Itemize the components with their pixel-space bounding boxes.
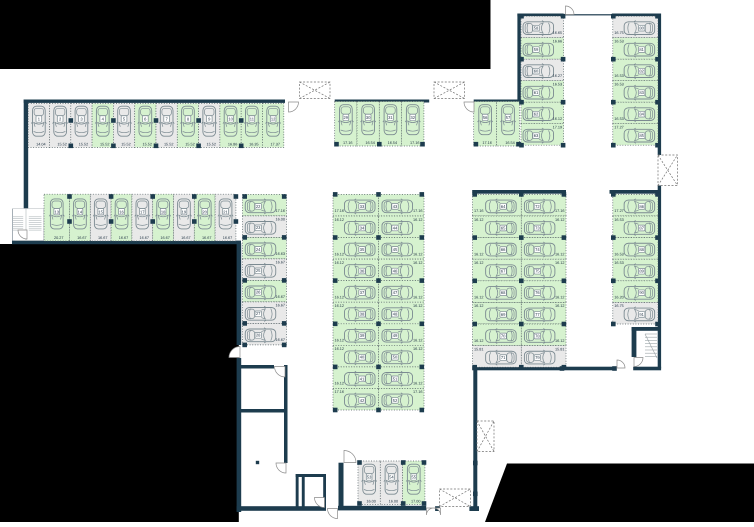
svg-text:16.53: 16.53 [614,74,624,78]
svg-text:88: 88 [639,247,644,252]
svg-text:16.12: 16.12 [474,304,484,308]
svg-text:17.16: 17.16 [343,141,353,145]
svg-text:16.12: 16.12 [335,382,345,386]
svg-text:13: 13 [55,209,60,214]
svg-text:32: 32 [411,115,416,120]
svg-text:16.12: 16.12 [555,261,565,265]
svg-text:16.12: 16.12 [335,304,345,308]
svg-text:75: 75 [535,269,540,274]
svg-text:62: 62 [534,112,539,117]
svg-text:16.67: 16.67 [140,236,150,240]
svg-text:17.16: 17.16 [413,390,423,394]
svg-text:16.12: 16.12 [335,218,345,222]
svg-text:16.53: 16.53 [614,252,624,256]
svg-text:16.12: 16.12 [474,296,484,300]
svg-text:33: 33 [360,204,365,209]
svg-text:16.12: 16.12 [474,261,484,265]
svg-text:15.52: 15.52 [100,142,110,146]
svg-text:16.12: 16.12 [413,252,423,256]
svg-text:70: 70 [501,333,506,338]
svg-text:39: 39 [360,333,365,338]
svg-text:16.53: 16.53 [553,83,563,87]
svg-text:68: 68 [501,290,506,295]
svg-text:64: 64 [501,204,506,209]
svg-text:16.75: 16.75 [614,304,624,308]
svg-text:16.53: 16.53 [614,40,624,44]
svg-text:15.81: 15.81 [474,347,484,351]
svg-text:20.27: 20.27 [54,236,64,240]
svg-text:16.67: 16.67 [275,338,285,342]
svg-text:48: 48 [393,312,398,317]
svg-text:63: 63 [534,133,539,138]
svg-text:15.52: 15.52 [185,142,195,146]
svg-text:61: 61 [534,90,539,95]
svg-text:29: 29 [344,115,349,120]
svg-text:17.37: 17.37 [270,142,280,146]
svg-text:28: 28 [256,333,261,338]
svg-text:47: 47 [393,290,398,295]
svg-text:42: 42 [360,398,365,403]
svg-text:14.04: 14.04 [36,142,46,146]
svg-text:23: 23 [256,225,261,230]
svg-text:15: 15 [98,209,103,214]
svg-text:54: 54 [389,475,394,480]
svg-text:36: 36 [360,269,365,274]
svg-text:67: 67 [501,269,506,274]
svg-text:53: 53 [367,475,372,480]
svg-text:16.75: 16.75 [614,31,624,35]
svg-text:20: 20 [202,209,207,214]
svg-text:17.16: 17.16 [335,209,345,213]
svg-text:16.53: 16.53 [614,83,624,87]
svg-text:17.19: 17.19 [553,126,563,130]
svg-text:22: 22 [256,204,261,209]
svg-text:12: 12 [271,117,276,122]
svg-text:79: 79 [535,355,540,360]
svg-text:57: 57 [506,115,511,120]
svg-text:16.12: 16.12 [413,295,423,299]
svg-text:73: 73 [535,225,540,230]
svg-text:38: 38 [360,312,365,317]
svg-text:35: 35 [360,247,365,252]
svg-text:16.12: 16.12 [555,296,565,300]
svg-text:55: 55 [412,475,417,480]
svg-text:18: 18 [161,209,166,214]
svg-text:17.00: 17.00 [411,500,421,504]
svg-text:72: 72 [535,204,540,209]
svg-text:14: 14 [78,209,83,214]
svg-text:16.12: 16.12 [335,347,345,351]
svg-text:16.12: 16.12 [335,295,345,299]
svg-text:84: 84 [639,112,644,117]
svg-text:16.63: 16.63 [275,252,285,256]
svg-text:17.16: 17.16 [555,209,565,213]
svg-text:16.67: 16.67 [223,236,233,240]
svg-text:16.67: 16.67 [275,261,285,265]
svg-text:16.53: 16.53 [614,218,624,222]
svg-text:16.12: 16.12 [555,252,565,256]
svg-text:71: 71 [501,355,506,360]
svg-text:26: 26 [256,290,261,295]
svg-text:31: 31 [388,115,393,120]
svg-text:50: 50 [393,355,398,360]
svg-text:37: 37 [360,290,365,295]
svg-text:24: 24 [256,247,261,252]
svg-text:46: 46 [393,269,398,274]
svg-text:11: 11 [250,117,255,122]
svg-text:17.16: 17.16 [410,141,420,145]
svg-text:52: 52 [393,398,398,403]
svg-text:16.67: 16.67 [202,236,212,240]
svg-text:16.00: 16.00 [389,500,399,504]
svg-text:16.12: 16.12 [555,218,565,222]
svg-text:65: 65 [501,225,506,230]
svg-text:27: 27 [256,311,261,316]
svg-text:90: 90 [639,290,644,295]
svg-text:16.12: 16.12 [413,218,423,222]
svg-text:76: 76 [535,290,540,295]
svg-text:85: 85 [639,133,644,138]
svg-text:17.16: 17.16 [482,141,492,145]
svg-text:49: 49 [393,333,398,338]
svg-text:16.12: 16.12 [335,261,345,265]
svg-text:21: 21 [223,209,228,214]
svg-text:87: 87 [639,225,644,230]
svg-text:74: 74 [535,247,540,252]
svg-text:66: 66 [501,247,506,252]
svg-text:16.12: 16.12 [553,117,563,121]
svg-text:17.16: 17.16 [275,209,285,213]
svg-text:15.52: 15.52 [79,142,89,146]
svg-text:16.67: 16.67 [275,304,285,308]
svg-text:16.12: 16.12 [335,339,345,343]
svg-text:16.12: 16.12 [413,304,423,308]
svg-text:16.12: 16.12 [555,339,565,343]
svg-text:16.54: 16.54 [388,141,398,145]
svg-text:83: 83 [639,90,644,95]
svg-text:89: 89 [639,269,644,274]
svg-text:16.67: 16.67 [181,236,191,240]
svg-text:15.81: 15.81 [555,347,565,351]
svg-text:16.00: 16.00 [366,500,376,504]
svg-text:17.27: 17.27 [614,209,624,213]
svg-text:16.67: 16.67 [77,236,87,240]
svg-text:16.12: 16.12 [555,304,565,308]
svg-text:16.65: 16.65 [553,31,563,35]
svg-text:51: 51 [393,376,398,381]
svg-text:80: 80 [639,26,644,31]
svg-text:16.86: 16.86 [228,142,238,146]
svg-text:15.52: 15.52 [143,142,153,146]
svg-text:16.53: 16.53 [614,261,624,265]
svg-text:81: 81 [639,47,644,52]
svg-text:16.54: 16.54 [505,141,515,145]
svg-text:45: 45 [393,247,398,252]
svg-text:41: 41 [360,376,365,381]
svg-text:16.12: 16.12 [413,339,423,343]
svg-text:34: 34 [360,225,365,230]
svg-text:91: 91 [639,312,644,317]
svg-text:16.67: 16.67 [160,236,170,240]
svg-text:19: 19 [182,209,187,214]
svg-text:16.12: 16.12 [474,218,484,222]
svg-text:16.12: 16.12 [335,252,345,256]
svg-text:56: 56 [483,115,488,120]
svg-text:16.12: 16.12 [474,339,484,343]
svg-text:69: 69 [501,312,506,317]
svg-text:16.66: 16.66 [553,40,563,44]
svg-text:78: 78 [535,333,540,338]
svg-text:16.20: 16.20 [614,296,624,300]
svg-text:59: 59 [534,47,539,52]
svg-text:16.12: 16.12 [413,261,423,265]
svg-text:16.12: 16.12 [474,252,484,256]
svg-text:44: 44 [393,225,398,230]
svg-text:58: 58 [534,26,539,31]
svg-text:10: 10 [228,117,233,122]
svg-text:17: 17 [140,209,145,214]
svg-text:17.16: 17.16 [413,209,423,213]
svg-text:16.35: 16.35 [249,142,259,146]
svg-text:40: 40 [360,355,365,360]
svg-text:60: 60 [534,69,539,74]
svg-text:16.53: 16.53 [614,117,624,121]
svg-text:16.12: 16.12 [413,382,423,386]
svg-text:17.27: 17.27 [614,126,624,130]
svg-text:86: 86 [639,204,644,209]
svg-text:16.67: 16.67 [275,295,285,299]
svg-text:15.52: 15.52 [207,142,217,146]
svg-text:30: 30 [366,115,371,120]
svg-text:77: 77 [535,312,540,317]
svg-text:15.52: 15.52 [164,142,174,146]
svg-text:17.16: 17.16 [474,209,484,213]
svg-text:16.67: 16.67 [119,236,129,240]
svg-text:16.27: 16.27 [553,74,563,78]
svg-text:16: 16 [119,209,124,214]
svg-text:16.00: 16.00 [275,218,285,222]
svg-text:16.54: 16.54 [365,141,375,145]
svg-text:43: 43 [393,204,398,209]
svg-text:15.52: 15.52 [121,142,131,146]
svg-text:16.12: 16.12 [413,347,423,351]
svg-text:25: 25 [256,268,261,273]
svg-text:82: 82 [639,69,644,74]
svg-text:16.67: 16.67 [98,236,108,240]
svg-text:15.52: 15.52 [57,142,67,146]
svg-text:17.16: 17.16 [335,390,345,394]
